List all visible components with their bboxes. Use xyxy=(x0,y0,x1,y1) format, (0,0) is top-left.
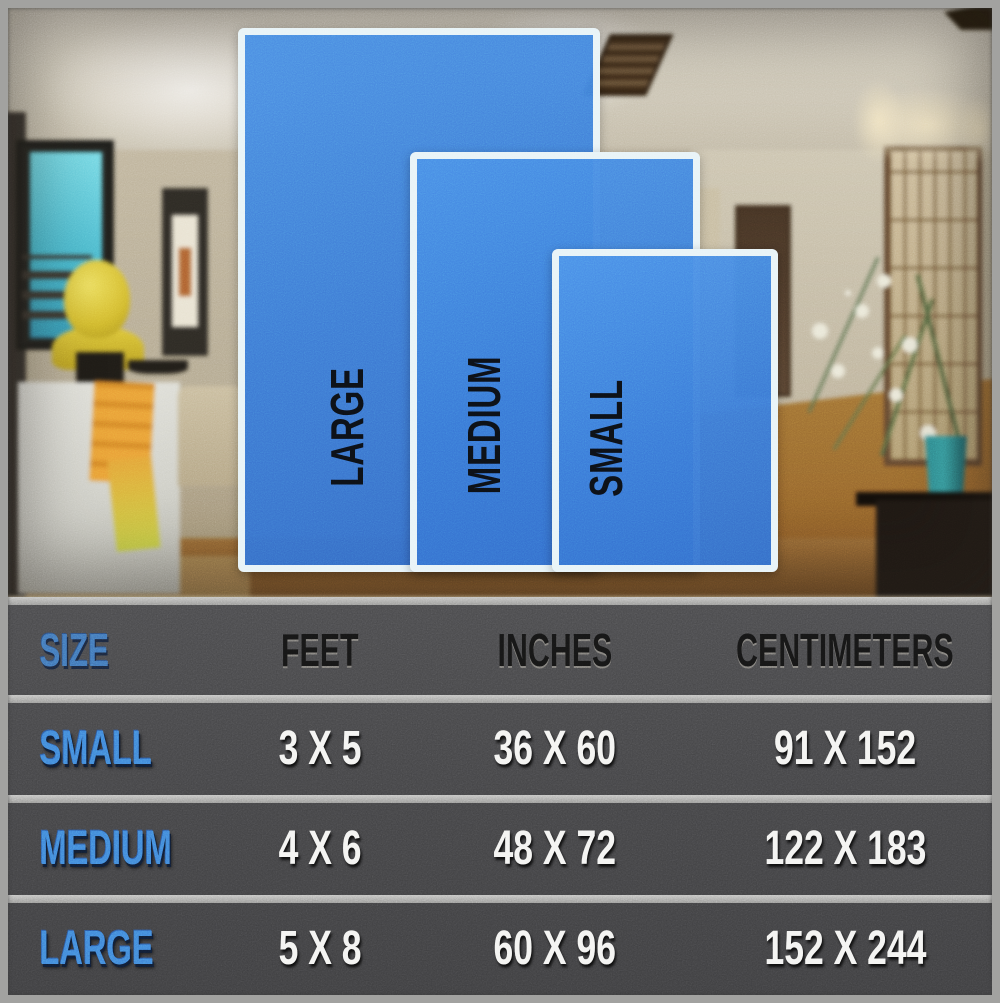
inches-value: 60 X 96 xyxy=(494,925,616,973)
row-label: SMALL xyxy=(0,725,152,773)
table-row-large: LARGE 5 X 8 60 X 96 152 X 244 xyxy=(0,903,1000,995)
rug-overlay-small: SMALL xyxy=(552,249,778,572)
feet-value: 4 X 6 xyxy=(279,825,362,873)
centimeters-value: 152 X 244 xyxy=(764,925,926,973)
centimeters-value: 91 X 152 xyxy=(774,725,916,773)
table-header-row: SIZE FEET INCHES CENTIMETERS xyxy=(0,605,1000,695)
header-centimeters: CENTIMETERS xyxy=(736,627,954,673)
table-row-medium: MEDIUM 4 X 6 48 X 72 122 X 183 xyxy=(0,803,1000,895)
row-divider xyxy=(0,995,1000,1003)
row-divider xyxy=(0,795,1000,803)
header-feet: FEET xyxy=(281,627,359,673)
row-label: MEDIUM xyxy=(0,825,172,873)
inches-value: 48 X 72 xyxy=(494,825,616,873)
row-divider xyxy=(0,695,1000,703)
row-label: LARGE xyxy=(0,925,154,973)
row-divider xyxy=(0,597,1000,605)
header-size: SIZE xyxy=(0,627,109,673)
rug-medium-label: MEDIUM xyxy=(457,356,511,495)
centimeters-value: 122 X 183 xyxy=(764,825,926,873)
size-table: SIZE FEET INCHES CENTIMETERS SMALL 3 X 5… xyxy=(0,597,1000,1003)
rug-size-chart: LARGE MEDIUM SMALL SIZE FEET INCHES CENT… xyxy=(0,0,1000,1003)
rug-large-label: LARGE xyxy=(320,367,374,487)
feet-value: 5 X 8 xyxy=(279,925,362,973)
room-photo: LARGE MEDIUM SMALL xyxy=(0,0,1000,597)
feet-value: 3 X 5 xyxy=(279,725,362,773)
rug-small-label: SMALL xyxy=(579,379,633,497)
row-divider xyxy=(0,895,1000,903)
table-row-small: SMALL 3 X 5 36 X 60 91 X 152 xyxy=(0,703,1000,795)
inches-value: 36 X 60 xyxy=(494,725,616,773)
header-inches: INCHES xyxy=(498,627,613,673)
